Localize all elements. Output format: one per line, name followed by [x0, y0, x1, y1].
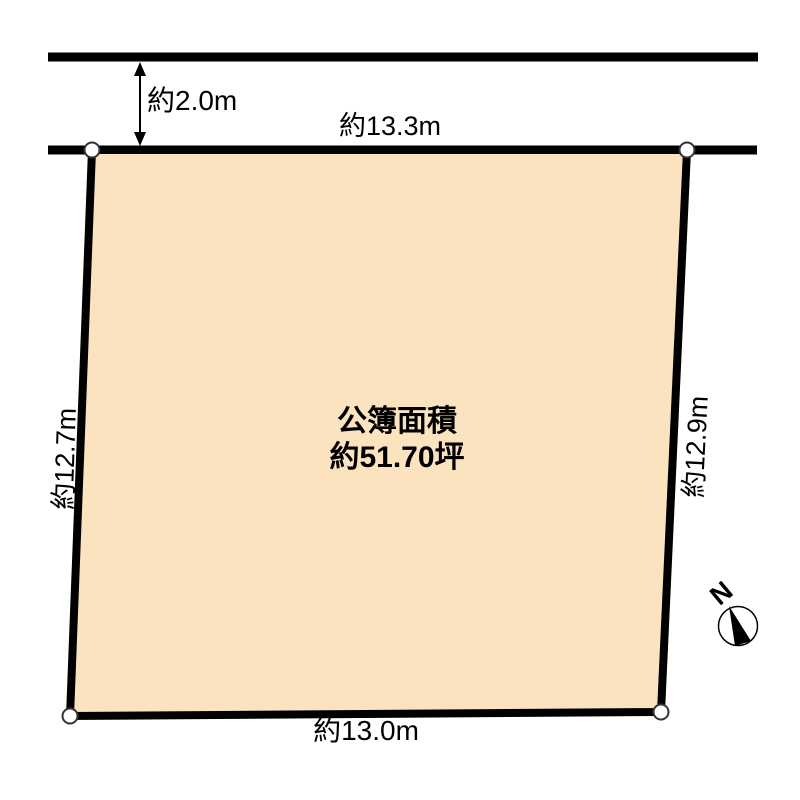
road-setback-dimension-label: 約2.0m: [147, 86, 237, 117]
compass: N: [704, 575, 757, 646]
corner-marker-top-left: [85, 143, 100, 158]
road-width-arrowhead-down-icon: [134, 132, 146, 146]
corner-marker-bottom-left: [63, 709, 78, 724]
registered-area-title: 公簿面積: [247, 404, 547, 440]
registered-area-text: 公簿面積 約51.70坪: [247, 404, 547, 476]
left-edge-dimension-label: 約12.7m: [49, 384, 84, 533]
road-width-arrowhead-up-icon: [134, 62, 146, 76]
site-plan-canvas: N 約2.0m 約13.3m 約12.7m 約12.9m 約13.0m 公簿面積…: [0, 0, 800, 800]
registered-area-value: 約51.70坪: [247, 440, 547, 476]
compass-north-label: N: [704, 575, 738, 611]
corner-marker-bottom-right: [654, 705, 669, 720]
top-edge-dimension-label: 約13.3m: [300, 112, 480, 142]
corner-marker-top-right: [680, 143, 695, 158]
road-width-arrow: [134, 62, 146, 146]
bottom-edge-dimension-label: 約13.0m: [276, 716, 456, 747]
